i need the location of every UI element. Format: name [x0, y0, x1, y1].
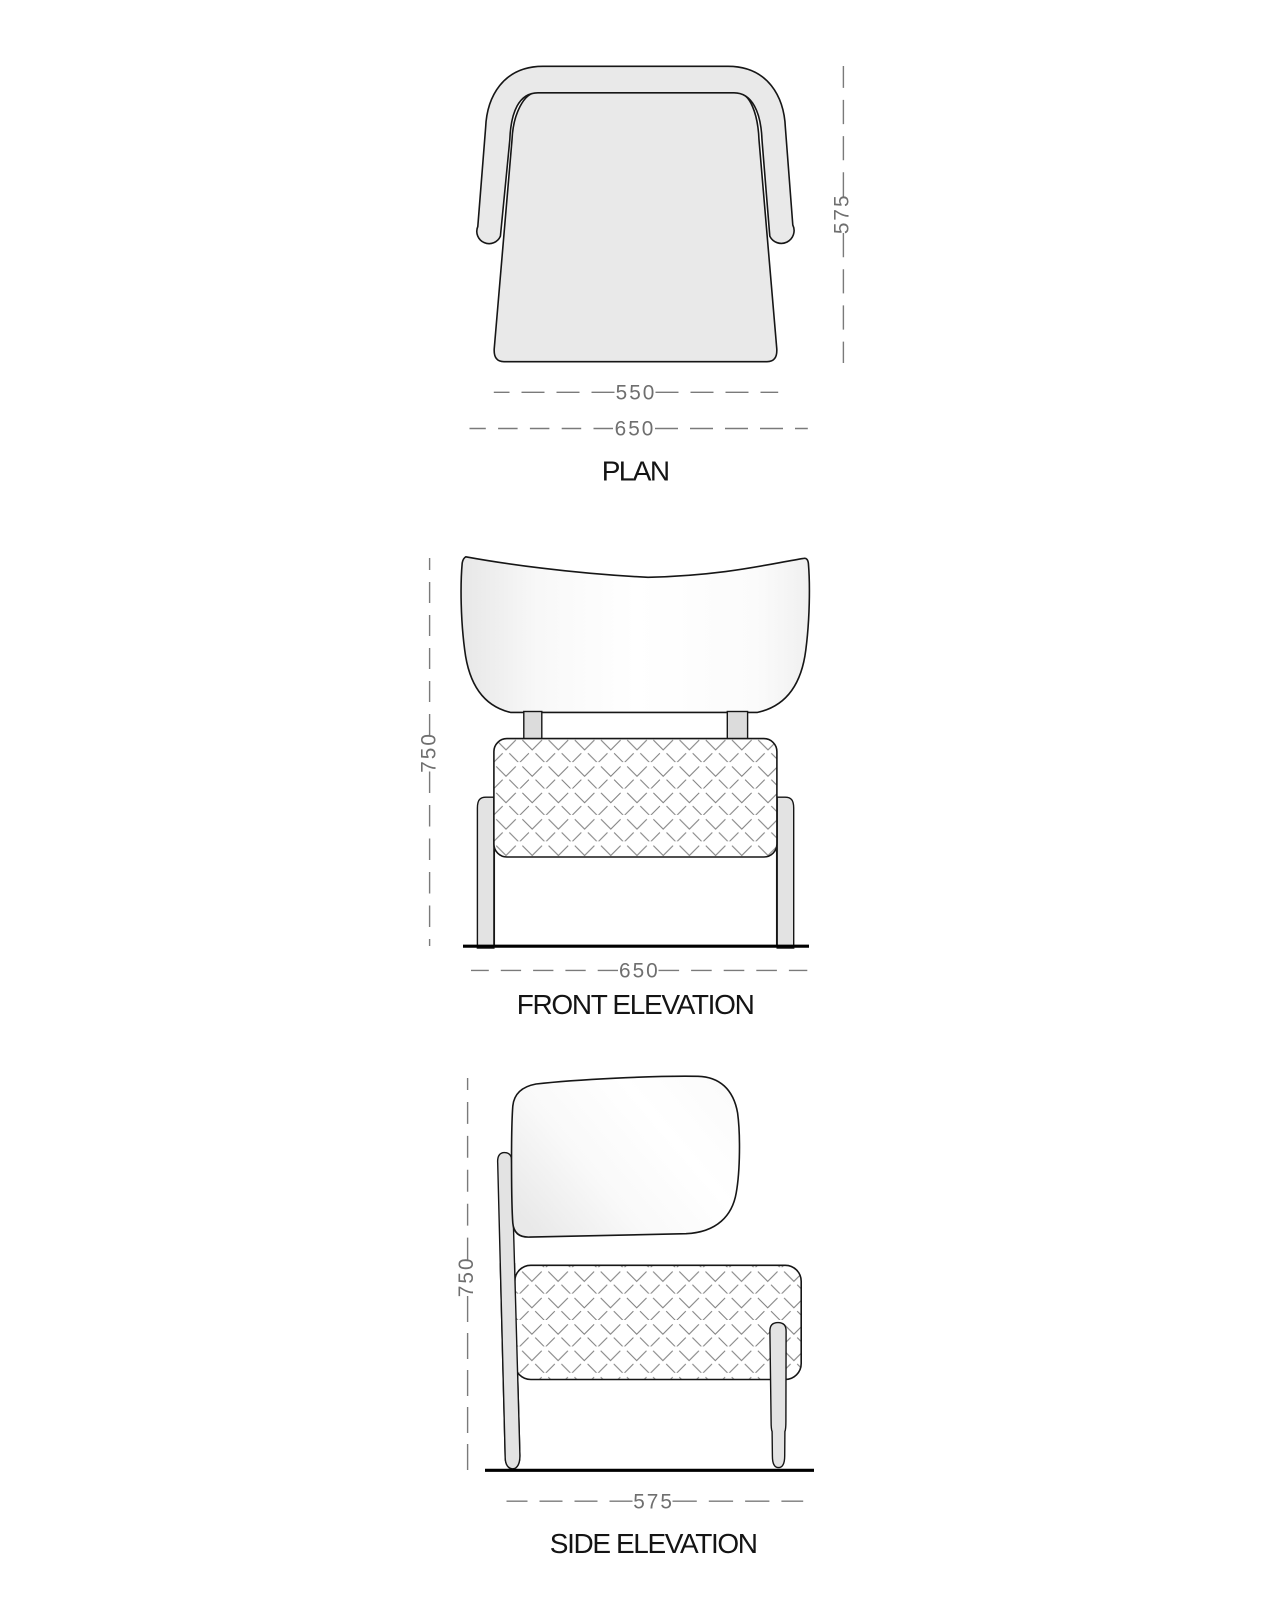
svg-text:PLAN: PLAN	[602, 456, 669, 487]
svg-text:575: 575	[633, 1490, 674, 1513]
svg-text:750: 750	[455, 1256, 478, 1297]
svg-text:650: 650	[615, 418, 656, 441]
svg-text:SIDE ELEVATION: SIDE ELEVATION	[550, 1528, 757, 1559]
svg-text:750: 750	[418, 732, 441, 773]
svg-text:650: 650	[619, 960, 660, 983]
svg-text:550: 550	[616, 381, 657, 404]
svg-text:575: 575	[831, 193, 854, 234]
svg-text:FRONT ELEVATION: FRONT ELEVATION	[517, 989, 754, 1020]
